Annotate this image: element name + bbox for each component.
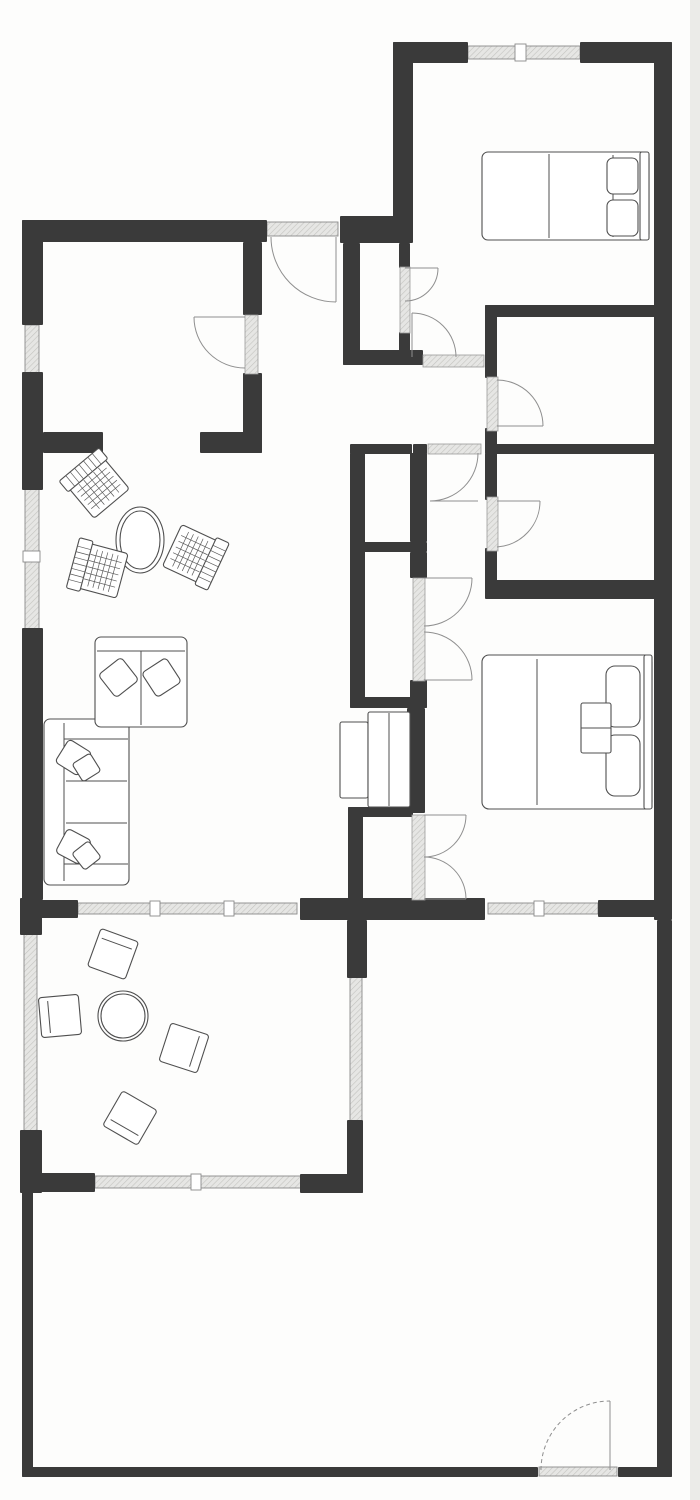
wall-segment: [347, 920, 367, 978]
wall-segment: [485, 444, 655, 454]
bed-double-master: [482, 655, 652, 809]
wall-segment: [22, 1467, 538, 1477]
bed-double-top-part: [607, 200, 638, 236]
wall-segment: [22, 1190, 33, 1477]
wall-segment: [243, 242, 262, 315]
door-pocket: [400, 267, 410, 333]
wall-segment: [300, 1174, 363, 1193]
dressing-table: [340, 712, 410, 807]
door-pocket: [487, 497, 498, 551]
wall-segment: [485, 580, 655, 593]
wall-segment: [485, 453, 497, 500]
window: [350, 975, 362, 1121]
door-pocket: [413, 578, 425, 681]
bed-double-top-part: [640, 152, 649, 240]
wall-segment: [343, 243, 360, 365]
patio-table-round: [98, 991, 148, 1041]
wall-segment: [22, 1173, 95, 1192]
sofa: [44, 719, 129, 885]
wall-segment: [598, 900, 672, 917]
dressing-table-part: [340, 722, 368, 798]
window: [539, 1467, 617, 1476]
wall-segment: [350, 697, 427, 708]
scanned-page: { "meta": { "canvas": { "w": 700, "h": 1…: [0, 0, 700, 1500]
wall-segment: [485, 548, 497, 584]
window: [267, 222, 338, 236]
wall-segment: [22, 628, 43, 900]
wall-segment: [399, 243, 410, 268]
bed-double-master-part: [644, 655, 652, 809]
wall-segment: [350, 444, 412, 454]
wall-segment: [393, 42, 413, 228]
window-sill-mark: [224, 901, 234, 916]
bed-double-top: [482, 152, 649, 240]
window-sill-mark: [534, 901, 544, 916]
patio-chair-2: [38, 994, 81, 1037]
bed-double-top-part: [607, 158, 638, 194]
wall-segment: [300, 898, 485, 920]
wall-segment: [657, 920, 672, 1477]
wall-segment: [654, 42, 672, 920]
window: [78, 903, 297, 914]
window-sill-mark: [23, 551, 40, 562]
window: [25, 325, 39, 373]
door-pocket: [412, 815, 425, 900]
wall-segment: [355, 542, 427, 552]
wall-segment: [43, 432, 103, 453]
wall-segment: [410, 552, 427, 578]
wall-segment: [348, 807, 363, 903]
wall-segment: [22, 220, 43, 325]
wall-segment: [413, 444, 427, 454]
window-sill-mark: [515, 44, 526, 61]
loveseat: [95, 637, 187, 727]
window-sill-mark: [150, 901, 160, 916]
scan-edge-shade: [690, 0, 700, 1500]
door-pocket: [428, 444, 481, 454]
wall-segment: [340, 216, 413, 243]
wall-segment: [38, 900, 78, 918]
wall-segment: [22, 220, 267, 242]
floor-plan-sheet: [0, 0, 700, 1500]
door-pocket: [245, 315, 258, 374]
patio-table-round-ring: [101, 994, 145, 1038]
wall-segment: [343, 350, 423, 365]
wall-segment: [393, 42, 468, 63]
window: [24, 933, 37, 1132]
wall-segment: [410, 453, 427, 542]
floor-plan-drawing: [0, 0, 700, 1500]
wall-segment: [200, 432, 262, 453]
patio-chair-2-part: [38, 994, 81, 1037]
door-pocket: [423, 355, 484, 367]
window-sill-mark: [191, 1174, 201, 1190]
door-pocket: [487, 377, 498, 431]
wall-segment: [350, 453, 365, 708]
wall-segment: [485, 305, 497, 378]
wall-segment: [485, 305, 655, 317]
wall-segment: [22, 372, 43, 490]
